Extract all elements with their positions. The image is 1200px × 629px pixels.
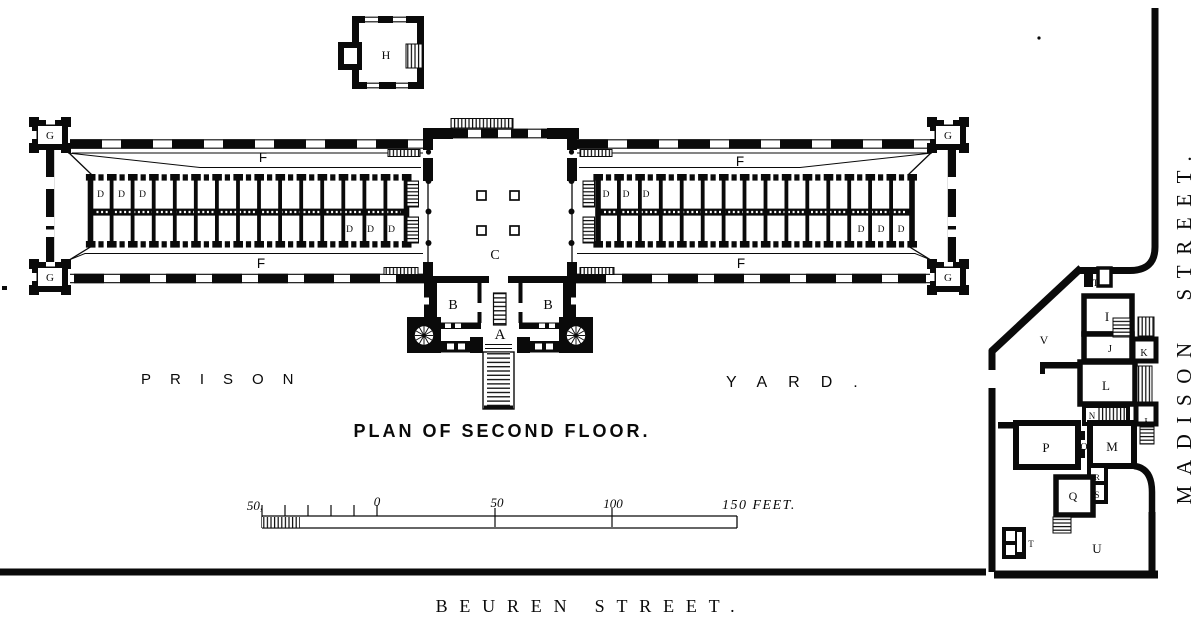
svg-text:D: D [118, 190, 125, 200]
svg-text:MADISON STREET.: MADISON STREET. [1172, 146, 1196, 505]
svg-text:C: C [490, 248, 499, 263]
svg-text:Q: Q [1069, 489, 1078, 503]
svg-text:B: B [543, 298, 552, 313]
svg-text:G: G [944, 272, 952, 284]
svg-text:H: H [382, 48, 391, 62]
svg-text:V: V [1040, 333, 1049, 347]
svg-text:L: L [1102, 378, 1110, 393]
svg-text:D: D [878, 225, 885, 235]
svg-text:F: F [257, 256, 265, 271]
svg-text:U: U [1092, 541, 1102, 556]
svg-text:D: D [643, 190, 650, 200]
svg-text:D: D [603, 190, 610, 200]
svg-text:50,: 50, [247, 498, 263, 513]
svg-text:50: 50 [491, 495, 505, 510]
svg-text:D: D [858, 225, 865, 235]
svg-text:G: G [944, 130, 952, 142]
svg-text:D: D [898, 225, 905, 235]
svg-text:D: D [346, 225, 353, 235]
svg-text:I: I [1105, 309, 1109, 324]
svg-text:F: F [259, 150, 267, 165]
svg-text:G: G [46, 130, 54, 142]
svg-text:N: N [1089, 411, 1096, 421]
svg-text:0: 0 [374, 494, 381, 509]
svg-text:G: G [46, 272, 54, 284]
svg-text:T: T [1028, 539, 1034, 549]
svg-text:A: A [495, 327, 506, 343]
svg-text:D: D [623, 190, 630, 200]
svg-text:BEUREN STREET.: BEUREN STREET. [436, 596, 747, 616]
svg-text:YARD.: YARD. [726, 374, 879, 391]
svg-text:P: P [1042, 440, 1049, 455]
svg-text:B: B [448, 298, 457, 313]
svg-text:F: F [736, 154, 744, 169]
svg-text:PLAN OF SECOND FLOOR.: PLAN OF SECOND FLOOR. [354, 421, 651, 441]
svg-text:100: 100 [603, 496, 623, 511]
svg-text:O: O [1080, 442, 1087, 453]
svg-text:PRISON: PRISON [141, 371, 313, 388]
svg-text:D: D [388, 225, 395, 235]
svg-text:D: D [367, 225, 374, 235]
svg-text:D: D [97, 190, 104, 200]
svg-text:Y: Y [1142, 416, 1149, 426]
svg-text:F: F [737, 256, 745, 271]
svg-text:K: K [1140, 348, 1148, 359]
svg-text:150 FEET.: 150 FEET. [722, 498, 796, 513]
svg-text:T: T [1093, 278, 1099, 288]
svg-text:J: J [1108, 344, 1112, 355]
svg-text:M: M [1106, 439, 1118, 454]
svg-text:D: D [139, 190, 146, 200]
